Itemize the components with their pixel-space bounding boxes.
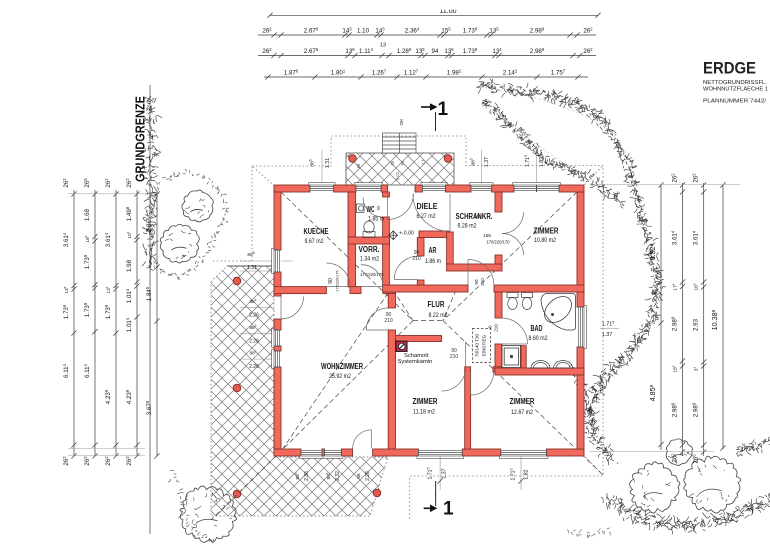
svg-text:OK: OK xyxy=(399,118,404,126)
svg-text:6.28 m2: 6.28 m2 xyxy=(458,223,477,230)
svg-text:VORR.: VORR. xyxy=(359,244,380,254)
svg-text:NETTOGRUNDRISSFL.: NETTOGRUNDRISSFL. xyxy=(703,80,767,86)
svg-text:210: 210 xyxy=(412,256,421,262)
svg-text:1: 1 xyxy=(443,499,454,520)
svg-text:1.68: 1.68 xyxy=(84,208,91,221)
svg-text:158: 158 xyxy=(483,233,491,238)
svg-text:DIELE: DIELE xyxy=(417,201,438,211)
svg-text:BAD: BAD xyxy=(531,323,543,333)
svg-text:2.36: 2.36 xyxy=(304,471,310,481)
svg-text:2.26: 2.26 xyxy=(249,338,259,344)
svg-text:12.67 m2: 12.67 m2 xyxy=(511,409,533,416)
svg-text:94: 94 xyxy=(432,48,439,55)
svg-text:1.31: 1.31 xyxy=(325,158,331,168)
svg-text:1: 1 xyxy=(438,99,449,120)
svg-text:ZIMMER: ZIMMER xyxy=(510,396,536,406)
svg-text:90: 90 xyxy=(328,278,334,284)
svg-text:2.02: 2.02 xyxy=(395,171,400,180)
svg-text:10.80 m2: 10.80 m2 xyxy=(534,237,556,244)
svg-text:25.92 m2: 25.92 m2 xyxy=(329,373,351,380)
svg-text:55: 55 xyxy=(390,160,395,165)
svg-text:11.18 m2: 11.18 m2 xyxy=(413,409,435,416)
svg-text:6.27 m2: 6.27 m2 xyxy=(417,213,436,220)
svg-text:210: 210 xyxy=(450,354,459,360)
svg-text:Systemkamin: Systemkamin xyxy=(398,359,433,365)
svg-text:WC: WC xyxy=(367,204,375,214)
svg-text:ZIMMER: ZIMMER xyxy=(534,226,560,236)
svg-text:1.37: 1.37 xyxy=(442,468,448,478)
svg-text:2.26: 2.26 xyxy=(365,471,371,481)
svg-text:88: 88 xyxy=(356,473,361,479)
svg-text:210: 210 xyxy=(494,324,499,332)
svg-text:90: 90 xyxy=(376,205,381,210)
svg-text:1.31: 1.31 xyxy=(247,265,257,271)
svg-text:70/140 T30: 70/140 T30 xyxy=(475,333,480,357)
svg-text:ZIMMER: ZIMMER xyxy=(413,396,439,406)
svg-text:175/220/175: 175/220/175 xyxy=(336,270,340,291)
svg-text:2.26: 2.26 xyxy=(249,313,259,319)
svg-text:GRUNDGRENZE: GRUNDGRENZE xyxy=(133,96,148,182)
svg-text:2.26: 2.26 xyxy=(249,364,259,370)
svg-text:175/220/175: 175/220/175 xyxy=(360,272,384,277)
svg-text:1.37: 1.37 xyxy=(602,332,613,338)
svg-text:1.98: 1.98 xyxy=(126,259,133,272)
svg-text:AR: AR xyxy=(429,245,438,255)
svg-text:210: 210 xyxy=(384,318,393,324)
svg-text:SCHRANKR.: SCHRANKR. xyxy=(456,211,493,221)
svg-text:1.10: 1.10 xyxy=(357,28,370,35)
svg-text:210: 210 xyxy=(480,278,485,286)
svg-text:13: 13 xyxy=(380,43,386,49)
svg-text:10.388: 10.388 xyxy=(710,309,719,330)
svg-text:170/220/170: 170/220/170 xyxy=(486,240,510,245)
svg-text:1.34 m2: 1.34 m2 xyxy=(360,256,379,263)
svg-text:ERDGE: ERDGE xyxy=(703,60,756,78)
svg-text:9.67 m2: 9.67 m2 xyxy=(305,238,324,245)
svg-text:1.82: 1.82 xyxy=(524,469,530,479)
svg-text:8.60 m2: 8.60 m2 xyxy=(529,335,548,342)
svg-text:EINSTIEG: EINSTIEG xyxy=(482,334,487,356)
svg-text:17: 17 xyxy=(421,159,426,164)
svg-text:KUECHE: KUECHE xyxy=(304,226,329,236)
svg-text:FLUR: FLUR xyxy=(428,299,446,309)
svg-text:PLANNUMMER 7442/: PLANNUMMER 7442/ xyxy=(703,99,766,105)
svg-text:2.93: 2.93 xyxy=(693,318,700,331)
svg-text:WOHNZIMMER: WOHNZIMMER xyxy=(321,361,364,371)
svg-text:88: 88 xyxy=(356,163,361,168)
svg-text:1.86 m: 1.86 m xyxy=(425,258,441,265)
svg-text:90: 90 xyxy=(474,279,479,285)
svg-text:8.22 m2: 8.22 m2 xyxy=(429,312,448,319)
svg-text:+-0.00: +-0.00 xyxy=(399,231,414,237)
svg-text:WOHNNUTZFLAECHE 1: WOHNNUTZFLAECHE 1 xyxy=(703,86,768,92)
svg-text:65: 65 xyxy=(400,160,405,165)
svg-text:2.32: 2.32 xyxy=(335,471,341,481)
